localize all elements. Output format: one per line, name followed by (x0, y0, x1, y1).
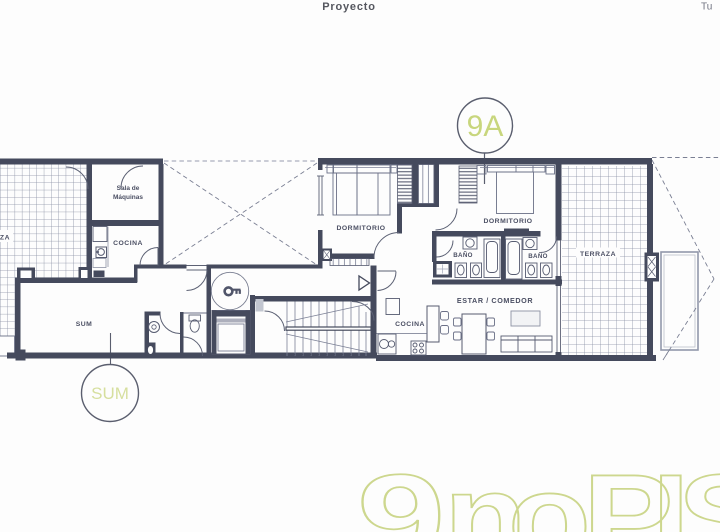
svg-text:9: 9 (357, 450, 445, 532)
svg-text:Proyecto: Proyecto (322, 1, 375, 13)
svg-text:TERRAZA: TERRAZA (580, 251, 616, 258)
svg-text:BAÑO: BAÑO (528, 253, 547, 260)
svg-text:DORMITORIO: DORMITORIO (336, 225, 385, 232)
svg-text:Máquinas: Máquinas (113, 194, 143, 201)
svg-text:COCINA: COCINA (395, 321, 425, 328)
svg-text:TERRAZA: TERRAZA (0, 235, 10, 242)
svg-text:COCINA: COCINA (113, 240, 143, 247)
svg-text:ESTAR / COMEDOR: ESTAR / COMEDOR (457, 296, 534, 305)
svg-text:9A: 9A (467, 110, 504, 143)
svg-text:Tu: Tu (701, 2, 712, 13)
svg-text:BAÑO: BAÑO (453, 252, 472, 259)
svg-text:Sala de: Sala de (117, 185, 140, 192)
svg-text:SUM: SUM (91, 384, 129, 403)
svg-text:S: S (678, 450, 720, 532)
svg-text:DORMITORIO: DORMITORIO (483, 218, 532, 225)
svg-text:SUM: SUM (76, 321, 93, 328)
svg-text:o: o (508, 450, 591, 532)
